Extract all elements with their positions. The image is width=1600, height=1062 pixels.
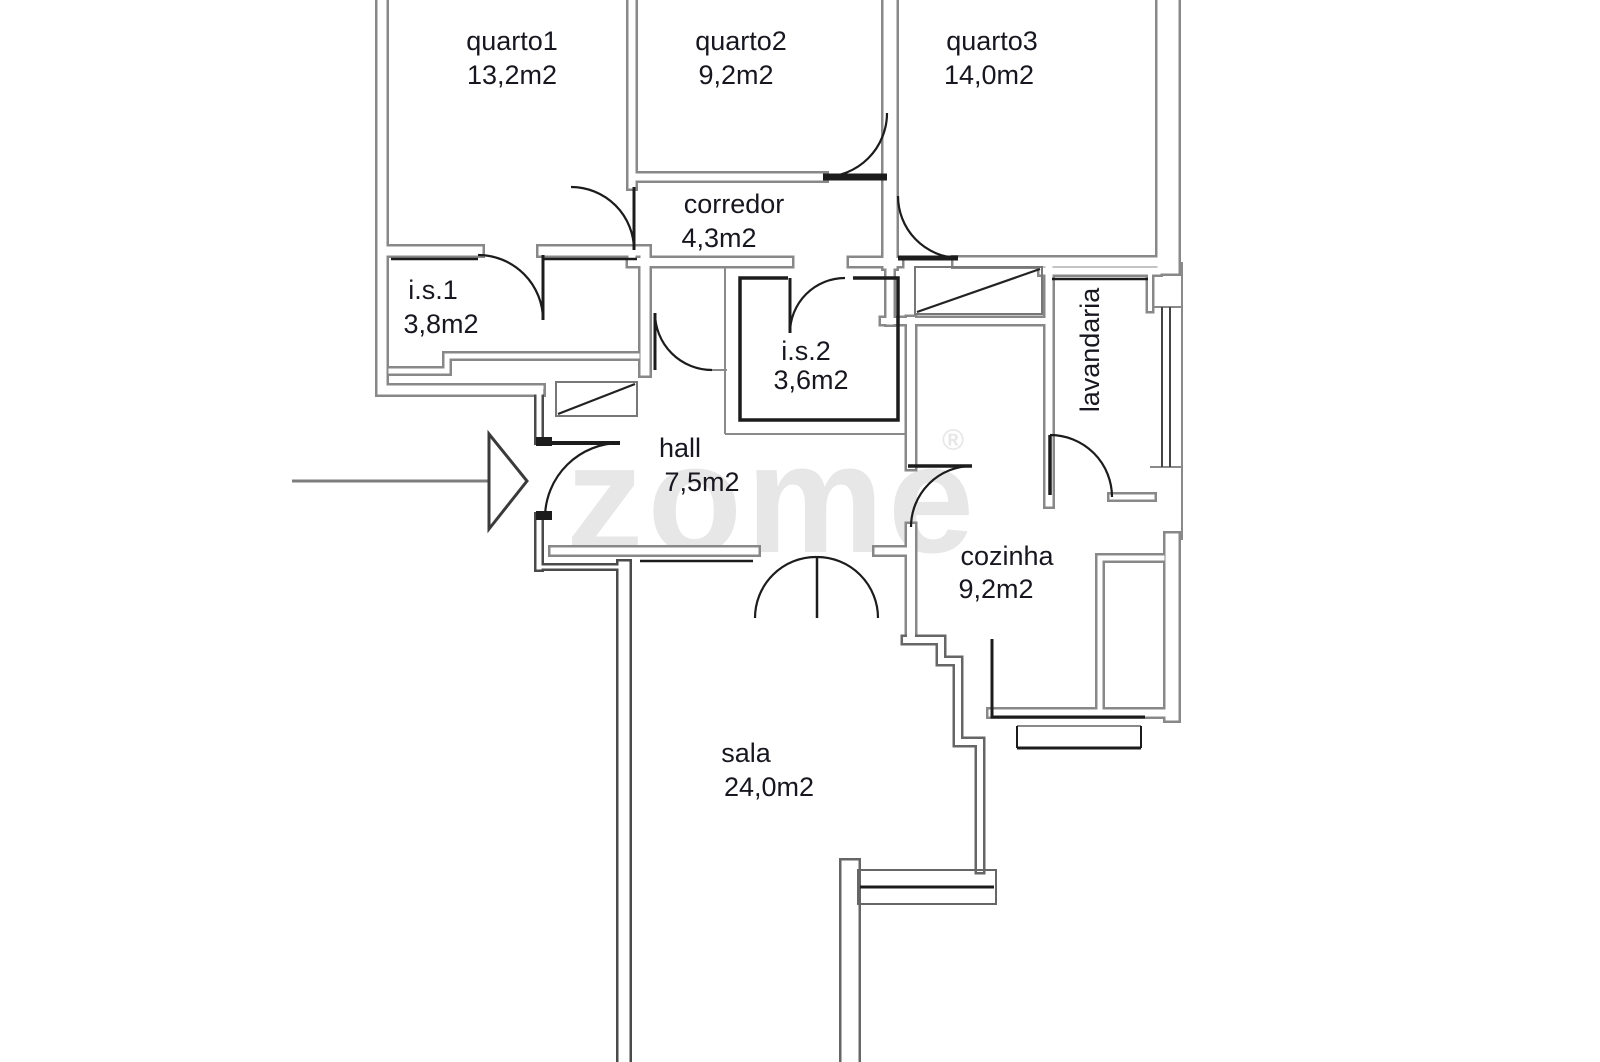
room-area-sala: 24,0m2 [724,772,814,802]
room-area-quarto2: 9,2m2 [698,60,773,90]
room-area-quarto3: 14,0m2 [944,60,1034,90]
room-area-cozinha: 9,2m2 [958,574,1033,604]
room-label-lavandaria: lavandaria [1075,287,1105,413]
room-area-is1: 3,8m2 [403,309,478,339]
floor-plan: zome®quarto113,2m2quarto29,2m2quarto314,… [0,0,1600,1062]
room-label-quarto2: quarto2 [695,26,787,56]
room-label-sala: sala [721,738,772,768]
room-area-is2: 3,6m2 [773,365,848,395]
room-label-quarto3: quarto3 [946,26,1038,56]
room-label-quarto1: quarto1 [466,26,558,56]
room-label-is2: i.s.2 [781,336,831,366]
room-area-quarto1: 13,2m2 [467,60,557,90]
room-area-hall: 7,5m2 [664,467,739,497]
floorplan-page: zome®quarto113,2m2quarto29,2m2quarto314,… [0,0,1600,1062]
room-label-is1: i.s.1 [408,275,458,305]
watermark-registered: ® [942,424,964,457]
room-label-corredor: corredor [684,189,785,219]
room-area-corredor: 4,3m2 [681,223,756,253]
room-label-hall: hall [659,433,701,463]
room-label-cozinha: cozinha [960,541,1054,571]
